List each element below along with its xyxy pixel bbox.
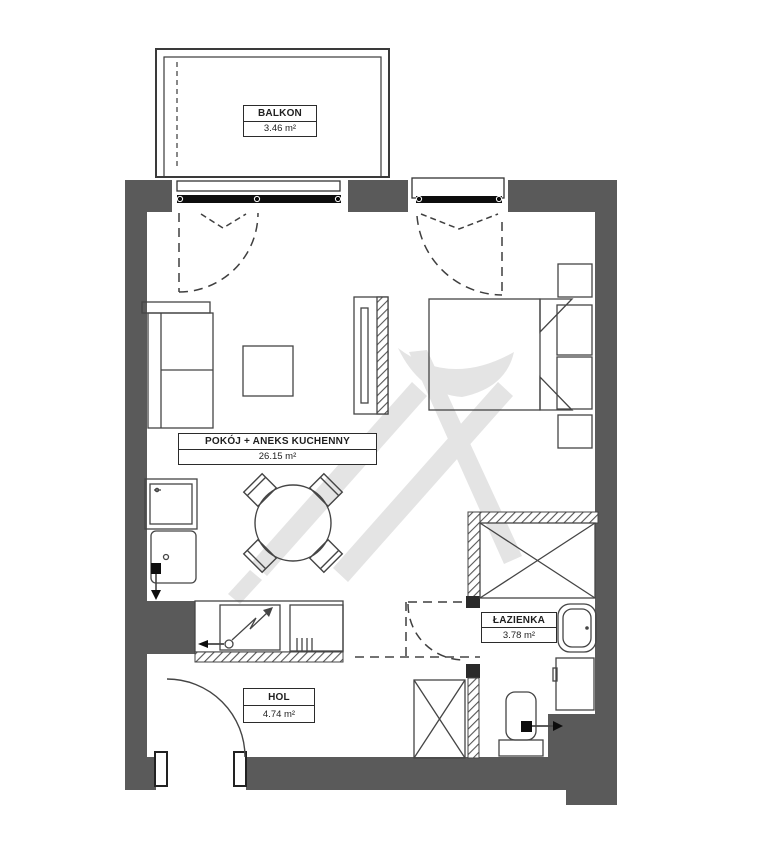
kitchen-counter xyxy=(195,601,480,662)
bathroom-door-swing xyxy=(406,602,466,660)
room-label-hall: HOL 4.74 m² xyxy=(243,688,315,723)
chair xyxy=(244,474,277,507)
room-label-bathroom: ŁAZIENKA 3.78 m² xyxy=(481,612,557,643)
room-name: BALKON xyxy=(244,106,316,122)
room-area: 3.46 m² xyxy=(244,122,316,137)
room-area: 3.78 m² xyxy=(482,628,556,642)
floor-plan-page: BALKON 3.46 m² POKÓJ + ANEKS KUCHENNY 26… xyxy=(0,0,760,864)
nightstand-bottom xyxy=(558,415,592,448)
entrance-door xyxy=(155,679,246,786)
tv-unit xyxy=(354,297,388,414)
door-window-swings xyxy=(179,213,502,295)
fridge xyxy=(151,531,196,600)
dishwasher xyxy=(290,605,343,651)
shower-square xyxy=(414,680,465,758)
room-name: POKÓJ + ANEKS KUCHENNY xyxy=(179,434,376,450)
window xyxy=(408,178,508,212)
bathroom-partition xyxy=(466,664,480,758)
room-name: ŁAZIENKA xyxy=(482,613,556,628)
walls xyxy=(125,180,617,805)
washing-machine xyxy=(553,658,594,710)
room-area: 26.15 m² xyxy=(179,450,376,465)
bathtub xyxy=(466,512,598,608)
washbasin xyxy=(558,604,596,652)
balcony-door xyxy=(172,181,348,212)
sofa xyxy=(142,302,213,428)
room-area: 4.74 m² xyxy=(244,706,314,722)
cooktop xyxy=(198,605,280,650)
coffee-table xyxy=(243,346,293,396)
room-name: HOL xyxy=(244,689,314,706)
counter-hatch xyxy=(195,652,343,662)
floor-plan-drawing xyxy=(0,0,760,864)
nightstand-top xyxy=(558,264,592,297)
room-label-balcony: BALKON 3.46 m² xyxy=(243,105,317,137)
kitchen-sink xyxy=(145,479,197,529)
room-label-living-kitchen: POKÓJ + ANEKS KUCHENNY 26.15 m² xyxy=(178,433,377,465)
